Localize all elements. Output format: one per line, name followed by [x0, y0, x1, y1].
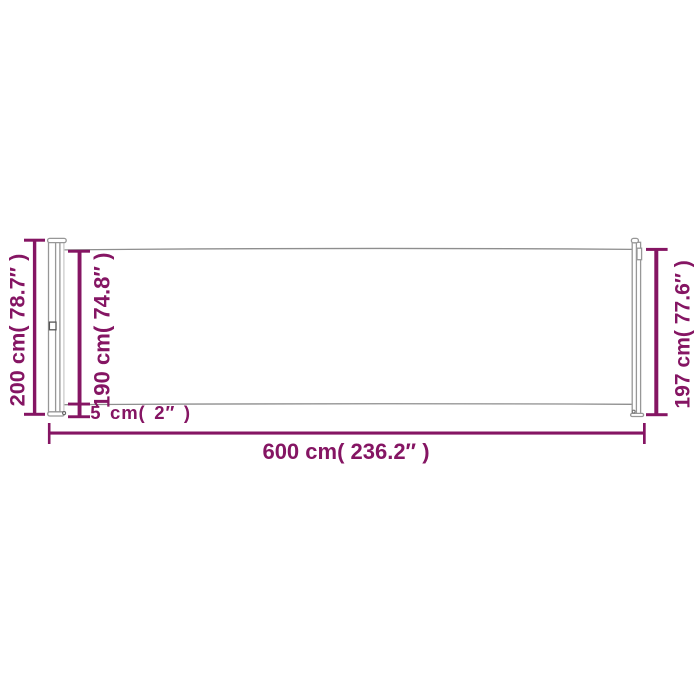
svg-text:197 cm( 77.6″ ): 197 cm( 77.6″ ) [672, 260, 695, 408]
svg-text:190 cm( 74.8″ ): 190 cm( 74.8″ ) [90, 253, 115, 409]
svg-text:600 cm( 236.2″ ): 600 cm( 236.2″ ) [262, 439, 429, 464]
svg-text:200 cm( 78.7″ ): 200 cm( 78.7″ ) [5, 254, 30, 407]
